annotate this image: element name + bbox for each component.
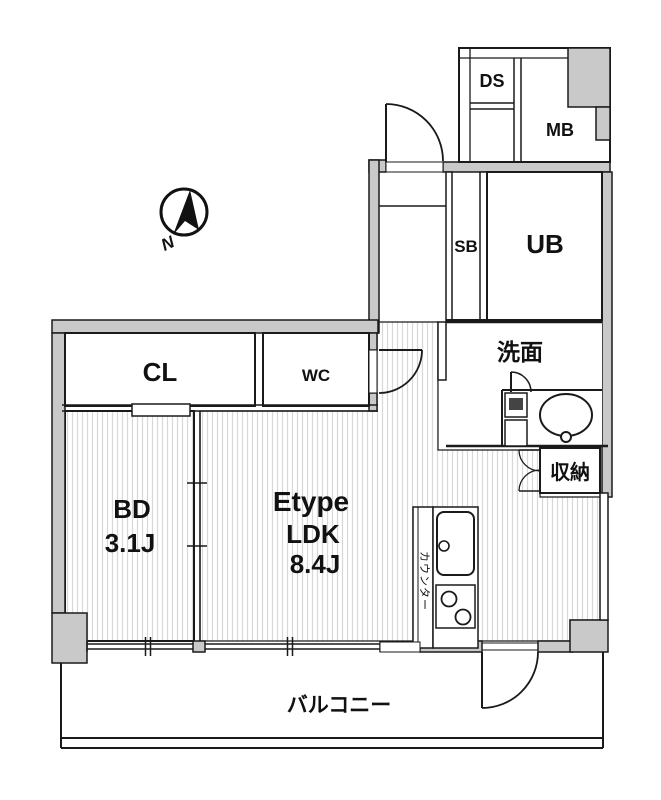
bedroom-floor bbox=[65, 411, 194, 641]
floor-plan-page: N DS MB SB UB 洗面 収納 CL WC BD 3.1J Etype … bbox=[0, 0, 661, 800]
shaft-block-b bbox=[596, 107, 610, 140]
label-plan-type: Etype bbox=[273, 486, 349, 517]
meterbox-unit bbox=[459, 48, 610, 162]
label-ub: UB bbox=[526, 229, 564, 259]
closet-door-panel bbox=[132, 404, 190, 416]
wall-wc-right-top bbox=[369, 333, 377, 350]
washing-machine-label bbox=[509, 398, 523, 410]
compass: N bbox=[158, 189, 207, 255]
wall-clwc-top bbox=[52, 320, 378, 333]
wall-pier-sw bbox=[52, 613, 87, 663]
label-sb: SB bbox=[454, 237, 478, 256]
label-north: N bbox=[158, 232, 178, 255]
label-storage: 収納 bbox=[550, 460, 590, 484]
wall-left bbox=[52, 333, 65, 613]
entrance-opening bbox=[386, 162, 443, 172]
washroom-cabinet bbox=[505, 420, 527, 446]
stove-burner-2 bbox=[456, 610, 471, 625]
shaft-block-a bbox=[568, 48, 610, 107]
label-ldk-size: 8.4J bbox=[290, 549, 341, 579]
wall-hall-left bbox=[369, 160, 379, 333]
wall-right-lower bbox=[600, 493, 608, 620]
balcony-door-swing bbox=[482, 652, 538, 708]
wc-door-opening bbox=[369, 350, 377, 393]
wash-basin bbox=[540, 394, 592, 436]
label-balcony: バルコニー bbox=[287, 694, 392, 717]
label-bedroom-size: 3.1J bbox=[105, 528, 156, 558]
label-counter: カウンター bbox=[418, 551, 431, 611]
label-wc: WC bbox=[302, 366, 330, 385]
wall-hall-sb bbox=[446, 172, 452, 322]
label-mb: MB bbox=[546, 120, 574, 140]
upper-rooms bbox=[379, 172, 602, 322]
label-bedroom: BD bbox=[113, 494, 151, 524]
entrance-door bbox=[386, 104, 443, 172]
label-closet: CL bbox=[143, 357, 178, 387]
stove-burner-1 bbox=[442, 592, 457, 607]
floor-plan-svg: N DS MB SB UB 洗面 収納 CL WC BD 3.1J Etype … bbox=[0, 0, 661, 800]
wall-wc-right-bottom bbox=[369, 393, 377, 411]
basin-faucet bbox=[561, 432, 571, 442]
wall-right bbox=[602, 172, 612, 497]
wall-sb-ub bbox=[480, 172, 487, 322]
wall-bottom-right bbox=[538, 641, 573, 652]
label-ldk: LDK bbox=[286, 519, 340, 549]
wall-corner-se bbox=[570, 620, 608, 652]
wall-white-segment bbox=[380, 642, 420, 652]
wall-top bbox=[443, 162, 610, 172]
window-mullion-pier bbox=[193, 641, 205, 652]
closet-wc bbox=[62, 333, 422, 416]
sink-faucet bbox=[439, 541, 449, 551]
wall-washroom-left bbox=[438, 322, 446, 380]
label-washroom: 洗面 bbox=[497, 339, 543, 365]
label-ds: DS bbox=[479, 71, 504, 91]
entrance-door-swing bbox=[386, 104, 443, 161]
